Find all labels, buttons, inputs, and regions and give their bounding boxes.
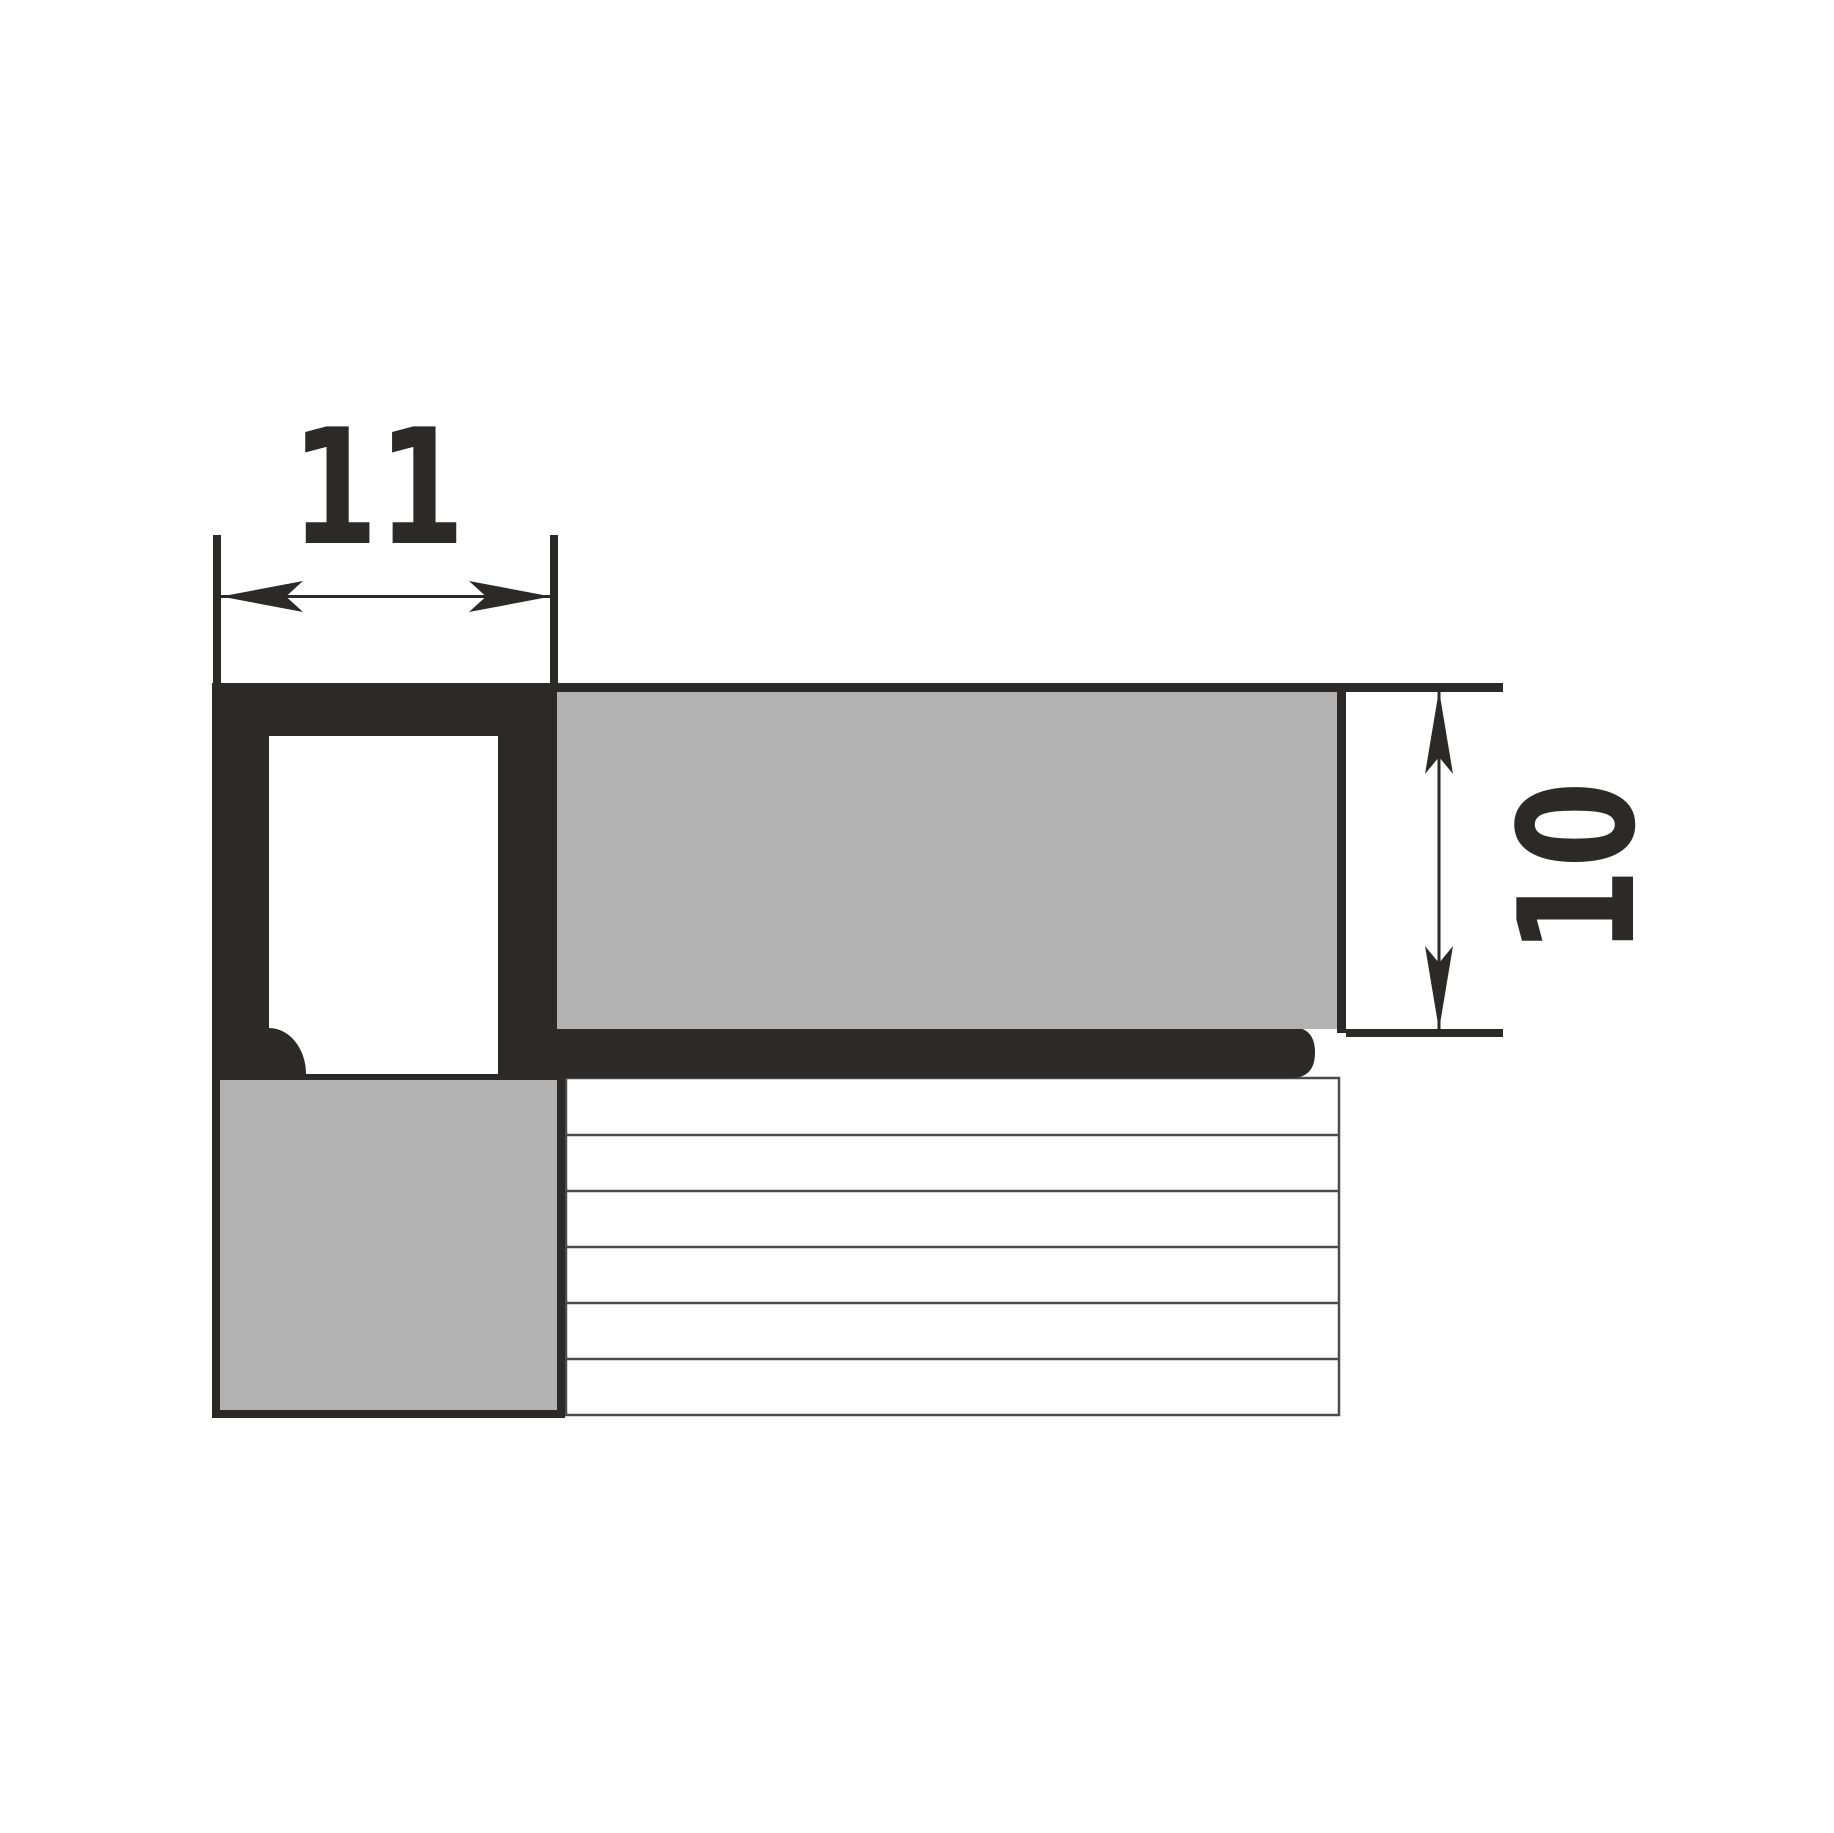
height-dim-extension-top <box>557 683 1503 692</box>
main-tile-body <box>557 690 1337 1029</box>
profile-anchor-flange <box>490 1027 1315 1078</box>
tile-trim-profile-cross-section: 11 10 <box>0 0 1834 1833</box>
main-tile <box>557 687 1346 1033</box>
width-dim-extension-right <box>550 535 558 685</box>
profile-body <box>212 683 557 1080</box>
height-dim-extension-bottom <box>1346 1029 1503 1037</box>
profile-drawing-canvas: 11 10 <box>0 0 1834 1833</box>
substrate-hatch <box>566 1078 1339 1415</box>
width-dimension-label: 11 <box>291 395 465 581</box>
height-dimension-label: 10 <box>1485 781 1671 955</box>
profile-cavity <box>269 736 498 1074</box>
width-dim-extension-left <box>213 535 221 685</box>
adjacent-tile <box>216 1076 561 1414</box>
main-tile-edge <box>1337 687 1346 1033</box>
